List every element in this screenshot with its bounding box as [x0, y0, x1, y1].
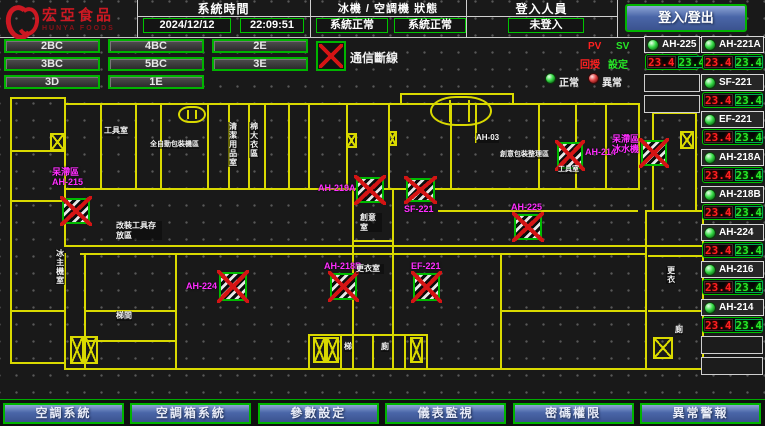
round-structure-bar [195, 110, 197, 119]
wall-segment [538, 103, 540, 188]
comm-error-x-icon [639, 138, 669, 168]
comm-error-x-icon [217, 270, 249, 303]
empty-slot [701, 336, 763, 354]
stairs-icon [313, 337, 326, 363]
empty-slot [644, 95, 700, 113]
wall-segment [12, 310, 64, 312]
machine-status-label: 冰機 / 空調機 狀態 [310, 1, 466, 17]
nav-button-密碼權限[interactable]: 密碼權限 [513, 403, 634, 424]
floor-button-1E[interactable]: 1E [108, 75, 204, 89]
unit-pv-value: 23.4 [704, 244, 733, 256]
unit-sv-value: 23.4 [735, 206, 764, 218]
setting-legend-label: 設定 [608, 56, 628, 71]
unit-values-AH-218A: 23.423.4 [702, 167, 763, 183]
unit-led-icon [704, 227, 716, 239]
unit-sv-value: 23.4 [735, 131, 764, 143]
unit-sv-value: 23.4 [735, 319, 764, 331]
room-label: 冰主機室 [55, 249, 65, 285]
comm-error-x-icon [328, 271, 359, 302]
room-label: 全自動包裝機區 [150, 141, 199, 149]
unit-values-SF-221: 23.423.4 [702, 92, 763, 108]
unit-sv-value: 23.4 [735, 244, 764, 256]
system-time-label: 系統時間 [137, 1, 310, 17]
wall-segment [645, 210, 647, 368]
comm-error-x-icon [411, 271, 442, 303]
ahu-status-value: 系統正常 [394, 18, 466, 33]
unit-pv-value: 23.4 [704, 94, 733, 106]
round-structure-bar [449, 100, 451, 122]
unit-sv-value: 23.4 [735, 281, 764, 293]
device-marker-冰水機[interactable] [641, 140, 667, 166]
nav-button-儀表監視[interactable]: 儀表監視 [385, 403, 506, 424]
device-marker-AH-224[interactable] [219, 272, 247, 301]
unit-led-icon [647, 39, 659, 51]
room-label: 更衣 [666, 266, 676, 284]
round-structure [178, 106, 206, 123]
device-marker-AH-219A[interactable] [356, 177, 384, 203]
wall-segment [426, 334, 428, 368]
wall-segment [352, 240, 392, 242]
unit-pv-value: 23.4 [704, 169, 733, 181]
unit-name: AH-216 [719, 264, 753, 275]
floor-button-2BC[interactable]: 2BC [4, 39, 100, 53]
hvac-hmi-screen: 宏亞食品 HUNYA FOODS 系統時間 2024/12/12 22:09:5… [0, 0, 765, 426]
unit-AH-218B[interactable]: AH-218B [701, 186, 764, 203]
bottom-nav: 空調系統空調箱系統參數設定儀表監視密碼權限異常警報 [0, 399, 765, 426]
unit-sv-value: 23.4 [735, 56, 764, 68]
unit-EF-221[interactable]: EF-221 [701, 111, 764, 128]
comm-error-x-icon [512, 212, 544, 242]
room-label: AH-03 [476, 133, 499, 143]
wall-segment [64, 103, 638, 105]
floor-button-3D[interactable]: 3D [4, 75, 100, 89]
unit-led-icon [704, 114, 716, 126]
wall-segment [645, 368, 704, 370]
unit-pv-value: 23.4 [647, 56, 676, 68]
wall-segment [392, 190, 394, 368]
unit-AH-214[interactable]: AH-214 [701, 299, 764, 316]
login-user-label: 登入人員 [466, 1, 617, 17]
feedback-legend-label: 回授 [580, 56, 600, 71]
unit-AH-218A[interactable]: AH-218A [701, 149, 764, 166]
device-marker-EF-221[interactable] [413, 273, 440, 301]
wall-segment [80, 253, 645, 255]
wall-segment [372, 334, 374, 368]
unit-name: AH-218A [719, 152, 761, 163]
room-label: 創意室 [360, 213, 382, 232]
wall-segment [10, 97, 64, 99]
stairs-icon [410, 337, 423, 363]
unit-name: EF-221 [719, 114, 752, 125]
wall-segment [308, 334, 310, 368]
logo-icon [6, 3, 36, 33]
unit-pv-value: 23.4 [704, 56, 733, 68]
device-label: AH-224 [186, 282, 217, 292]
unit-led-icon [704, 39, 716, 51]
normal-legend-label: 正常 [559, 74, 579, 89]
unit-sv-value: 23.4 [735, 169, 764, 181]
unit-values-EF-221: 23.423.4 [702, 129, 763, 145]
stairs-icon [653, 337, 673, 359]
room-label: 改裝工具存放區 [116, 221, 162, 240]
header: 宏亞食品 HUNYA FOODS 系統時間 2024/12/12 22:09:5… [0, 0, 765, 38]
wall-segment [135, 103, 137, 188]
device-label: AH-225 [511, 203, 542, 213]
nav-button-參數設定[interactable]: 參數設定 [258, 403, 379, 424]
unit-values-AH-224: 23.423.4 [702, 242, 763, 258]
stairs-icon [680, 131, 694, 149]
device-marker-AH-215[interactable] [62, 198, 90, 224]
wall-segment [64, 245, 702, 247]
wall-segment [12, 200, 64, 202]
unit-sv-value: 23.4 [735, 94, 764, 106]
wall-segment [648, 255, 702, 257]
wall-segment [400, 93, 512, 95]
room-label: 廁 [675, 325, 683, 335]
device-label: EF-221 [411, 262, 441, 272]
empty-slot [701, 357, 763, 375]
wall-segment [648, 310, 702, 312]
abnormal-led-icon [588, 73, 599, 84]
wall-segment [100, 103, 102, 188]
login-logout-button[interactable]: 登入/登出 [625, 4, 747, 32]
pv-legend-label: PV [588, 41, 601, 52]
unit-led-icon [704, 264, 716, 276]
logo-text: 宏亞食品 [42, 4, 115, 25]
comm-error-x-icon [404, 176, 437, 204]
unit-AH-225[interactable]: AH-225 [644, 36, 700, 53]
nav-button-空調箱系統[interactable]: 空調箱系統 [130, 403, 251, 424]
unit-name: AH-225 [662, 39, 696, 50]
floor-button-4BC[interactable]: 4BC [108, 39, 204, 53]
unit-pv-value: 23.4 [704, 206, 733, 218]
stairs-icon [50, 133, 65, 151]
device-marker-AH-218B[interactable] [330, 273, 357, 300]
nav-button-空調系統[interactable]: 空調系統 [3, 403, 124, 424]
wall-segment [645, 210, 702, 212]
device-label: SF-221 [404, 205, 434, 215]
comm-error-x-icon [60, 196, 92, 226]
chiller-status-value: 系統正常 [316, 18, 388, 33]
header-divider [617, 0, 618, 37]
stairs-icon [346, 133, 357, 148]
device-marker-SF-221[interactable] [406, 178, 435, 202]
logo-subtext: HUNYA FOODS [42, 25, 115, 32]
wall-segment [308, 368, 426, 370]
unit-values-AH-214: 23.423.4 [702, 317, 763, 333]
round-structure-bar [468, 100, 470, 122]
empty-slot [644, 74, 700, 92]
room-label: 清潔用品室 [228, 122, 238, 167]
floor-button-5BC[interactable]: 5BC [108, 57, 204, 71]
wall-segment [10, 97, 12, 362]
wall-segment [207, 103, 209, 188]
comm-error-x-icon [354, 175, 386, 205]
wall-segment [426, 368, 648, 370]
company-logo: 宏亞食品 HUNYA FOODS [6, 3, 115, 33]
room-label: 工具室 [558, 166, 579, 174]
room-label: 工具室 [104, 126, 128, 136]
wall-segment [605, 103, 607, 188]
unit-values-AH-225: 23.423.4 [645, 54, 699, 70]
room-label: 梯 [344, 342, 352, 352]
room-label: 廁 [381, 342, 389, 352]
unit-values-AH-218B: 23.423.4 [702, 204, 763, 220]
wall-segment [308, 334, 426, 336]
room-label: 棉大衣區 [249, 122, 259, 158]
room-label: 更衣室 [356, 264, 384, 274]
unit-name: AH-224 [719, 227, 753, 238]
wall-segment [340, 334, 342, 368]
unit-pv-value: 23.4 [704, 131, 733, 143]
normal-led-icon [545, 73, 556, 84]
unit-SF-221[interactable]: SF-221 [701, 74, 764, 91]
system-date-value: 2024/12/12 [143, 18, 231, 33]
unit-pv-value: 23.4 [704, 319, 733, 331]
room-label: 梯間 [116, 311, 132, 321]
device-label: 呆滯區 AH-215 [52, 168, 83, 188]
stairs-icon [84, 336, 98, 364]
unit-name: AH-218B [719, 189, 761, 200]
wall-segment [288, 103, 290, 188]
unit-led-icon [704, 77, 716, 89]
floor-button-3BC[interactable]: 3BC [4, 57, 100, 71]
device-marker-AH-225[interactable] [514, 214, 542, 240]
unit-values-AH-221A: 23.423.4 [702, 54, 763, 70]
wall-segment [400, 93, 402, 103]
nav-button-異常警報[interactable]: 異常警報 [640, 403, 761, 424]
unit-pv-value: 23.4 [704, 281, 733, 293]
stairs-icon [70, 336, 84, 364]
logo-text-block: 宏亞食品 HUNYA FOODS [42, 4, 115, 32]
unit-led-icon [704, 152, 716, 164]
wall-segment [10, 362, 64, 364]
unit-led-icon [704, 189, 716, 201]
floor-button-2E[interactable]: 2E [212, 39, 308, 53]
device-label: 呆滯區 冰水機 [612, 135, 639, 155]
unit-led-icon [704, 302, 716, 314]
wall-segment [404, 334, 406, 368]
unit-name: AH-214 [719, 302, 753, 313]
comm-error-legend-icon [316, 41, 346, 71]
wall-segment [175, 253, 177, 368]
abnormal-legend-label: 異常 [602, 74, 622, 89]
round-structure-bar [187, 110, 189, 119]
unit-name: SF-221 [719, 77, 752, 88]
wall-segment [264, 103, 266, 188]
wall-segment [512, 93, 514, 103]
room-label: 創意包裝整理區 [500, 151, 549, 159]
login-user-value: 未登入 [508, 18, 584, 33]
unit-AH-221A[interactable]: AH-221A [701, 36, 764, 53]
wall-segment [500, 310, 645, 312]
stairs-icon [388, 131, 397, 146]
stairs-icon [326, 337, 339, 363]
unit-name: AH-221A [719, 39, 761, 50]
unit-AH-216[interactable]: AH-216 [701, 261, 764, 278]
wall-segment [695, 112, 697, 210]
wall-segment [64, 368, 308, 370]
comm-error-legend-label: 通信斷線 [350, 49, 398, 66]
system-time-value: 22:09:51 [240, 18, 304, 33]
sv-legend-label: SV [616, 41, 629, 52]
device-marker-AH-214[interactable] [557, 142, 583, 169]
wall-segment [308, 103, 310, 188]
unit-values-AH-216: 23.423.4 [702, 279, 763, 295]
floor-button-3E[interactable]: 3E [212, 57, 308, 71]
unit-AH-224[interactable]: AH-224 [701, 224, 764, 241]
device-label: AH-219A [318, 184, 356, 194]
round-structure [430, 96, 492, 126]
